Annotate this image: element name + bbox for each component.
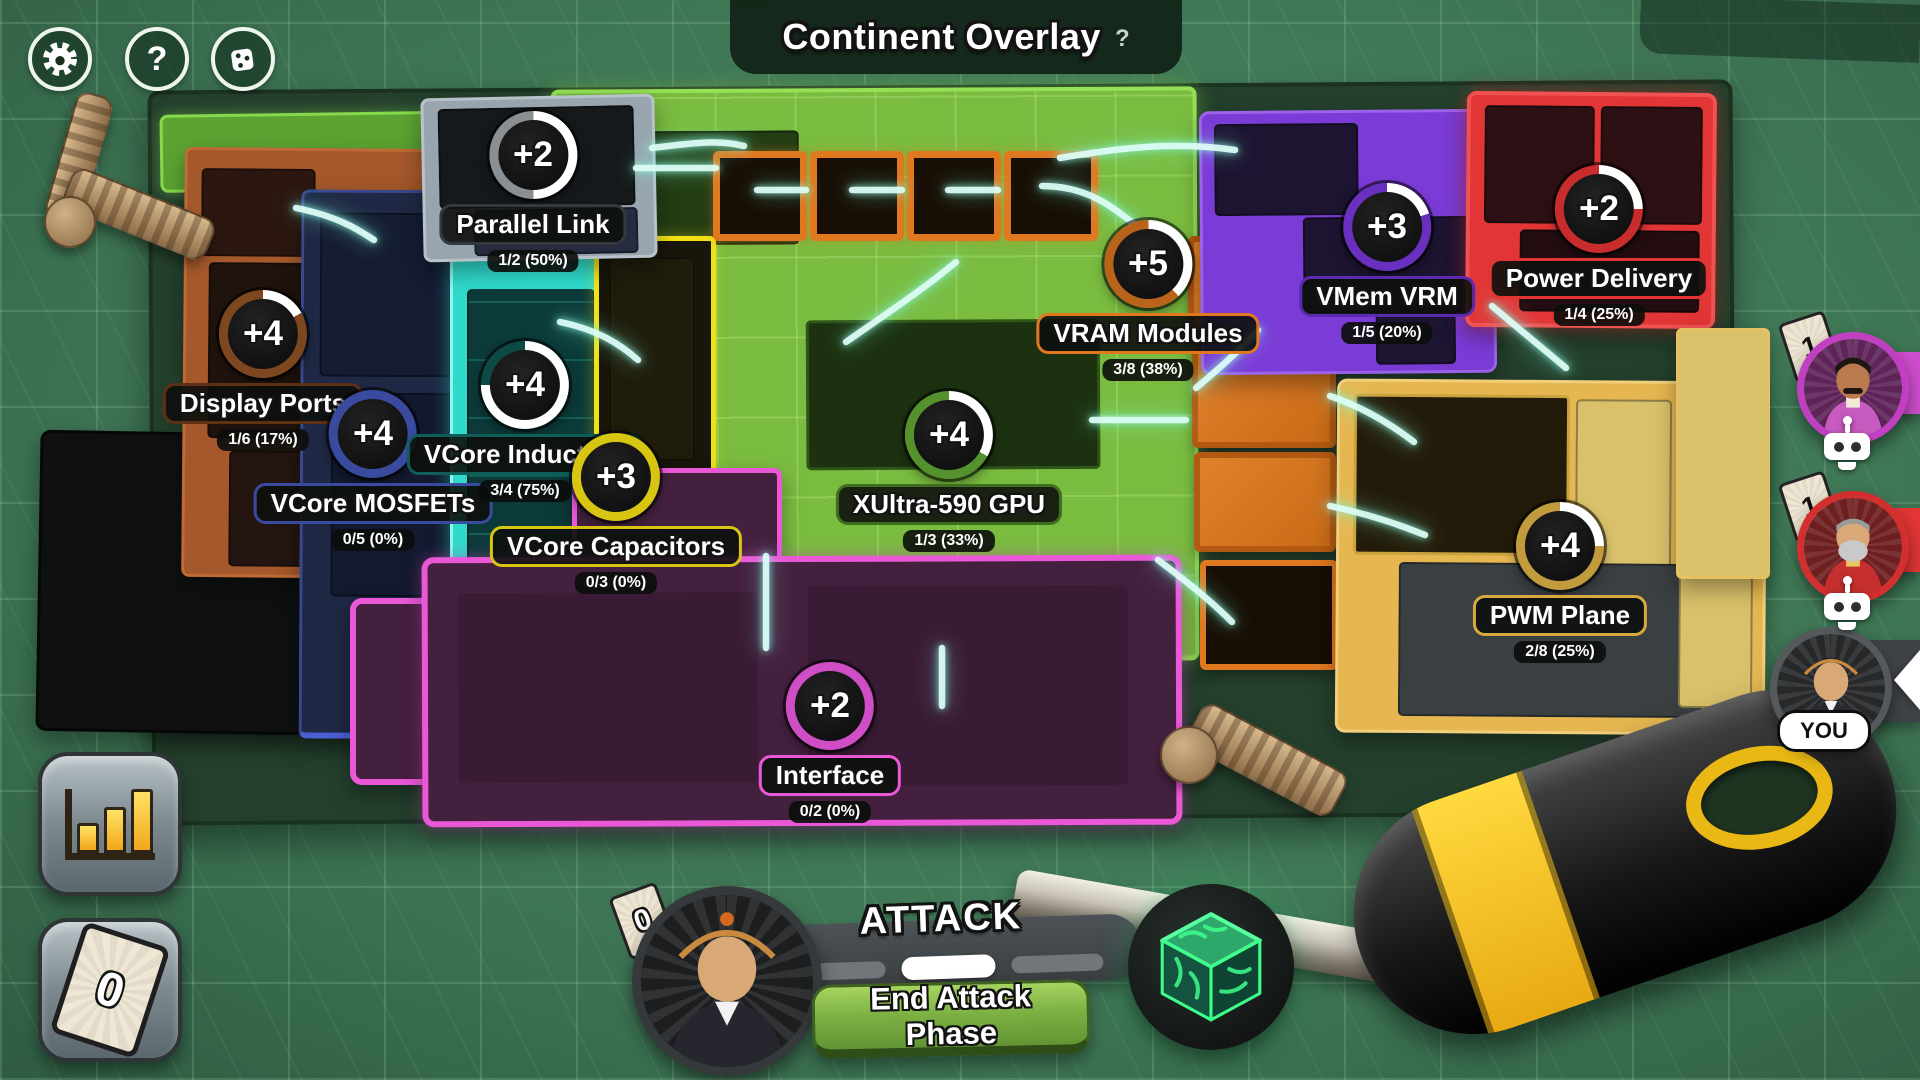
you-label: YOU: [1777, 710, 1871, 752]
page-title: Continent Overlay: [782, 16, 1101, 58]
phase-step: [1011, 953, 1104, 973]
region-bonus: +4: [1525, 511, 1595, 581]
dice-menu-button[interactable]: [211, 27, 275, 91]
region-progress-ring: +2: [489, 111, 577, 199]
region-name-label: Power Delivery: [1489, 258, 1709, 299]
vram-pad-square: [907, 151, 1001, 241]
region-progress-label: 1/2 (50%): [487, 250, 578, 272]
region-name-label: VCore Capacitors: [490, 526, 742, 567]
region-badge-vmem-vrm[interactable]: +3 VMem VRM 1/5 (20%): [1299, 183, 1475, 344]
region-badge-parallel-link[interactable]: +2 Parallel Link 1/2 (50%): [439, 111, 626, 272]
region-progress-label: 0/3 (0%): [575, 572, 657, 594]
region-bonus: +3: [581, 442, 651, 512]
region-name-label: XUltra-590 GPU: [836, 484, 1062, 525]
die-icon: [1150, 906, 1272, 1028]
end-attack-phase-button[interactable]: End Attack Phase: [811, 979, 1090, 1059]
phase-step-current: [901, 954, 996, 980]
region-name-label: VRAM Modules: [1036, 313, 1259, 354]
player-portrait: [1804, 339, 1902, 437]
player-portrait: [1804, 498, 1902, 596]
region-name-label: Interface: [759, 755, 901, 796]
region-progress-label: 0/2 (0%): [789, 801, 871, 823]
help-icon: ?: [147, 40, 168, 79]
region-bonus: +4: [490, 350, 560, 420]
region-bonus: +2: [1564, 174, 1634, 244]
screwdriver-hole: [1677, 734, 1842, 862]
region-shape-vram-modules[interactable]: [1194, 452, 1336, 552]
region-bonus: +4: [914, 400, 984, 470]
stats-icon: [65, 789, 155, 860]
help-button[interactable]: ?: [125, 27, 189, 91]
hand-cards-button[interactable]: 0: [38, 918, 182, 1062]
region-progress-ring: +5: [1104, 220, 1192, 308]
attack-die-button[interactable]: [1128, 884, 1294, 1050]
region-progress-ring: +3: [1343, 183, 1431, 271]
region-progress-ring: +4: [329, 390, 417, 478]
mat-corner-shadow: [1639, 0, 1920, 63]
header-bar: Continent Overlay ?: [730, 0, 1182, 74]
region-shape-vram-modules[interactable]: [1200, 560, 1338, 670]
region-badge-vcore-capacitors[interactable]: +3 VCore Capacitors 0/3 (0%): [490, 433, 742, 594]
region-progress-label: 0/5 (0%): [332, 529, 414, 551]
region-bonus: +2: [498, 120, 568, 190]
region-name-label: VMem VRM: [1299, 276, 1475, 317]
vram-pad-square: [713, 151, 807, 241]
screw-head-decor: [44, 196, 96, 248]
region-progress-ring: +4: [481, 341, 569, 429]
region-progress-ring: +2: [1555, 165, 1643, 253]
pcb-chip: [458, 592, 759, 783]
region-progress-label: 1/4 (25%): [1553, 304, 1644, 326]
region-progress-label: 1/5 (20%): [1341, 322, 1432, 344]
region-badge-interface[interactable]: +2 Interface 0/2 (0%): [759, 662, 901, 823]
pcb-chip: [201, 168, 316, 257]
region-bonus: +5: [1113, 229, 1183, 299]
region-bonus: +2: [795, 671, 865, 741]
header-help-icon[interactable]: ?: [1115, 25, 1130, 53]
region-badge-xultra-gpu[interactable]: +4 XUltra-590 GPU 1/3 (33%): [836, 391, 1062, 552]
chevron-left-icon[interactable]: [1894, 650, 1920, 710]
pcb-tan-column: [1676, 328, 1770, 579]
region-name-label: Parallel Link: [439, 204, 626, 245]
region-progress-label: 3/8 (38%): [1102, 359, 1193, 381]
dice-icon: [227, 43, 259, 75]
screwdriver-band: [1411, 771, 1600, 1036]
hand-card-count: 0: [49, 921, 170, 1059]
screw-head-decor: [1160, 726, 1218, 784]
region-bonus: +3: [1352, 192, 1422, 262]
region-progress-label: 1/3 (33%): [903, 530, 994, 552]
region-bonus: +4: [338, 399, 408, 469]
current-player-portrait: [641, 895, 813, 1067]
region-progress-ring: +4: [905, 391, 993, 479]
region-badge-power-delivery[interactable]: +2 Power Delivery 1/4 (25%): [1489, 165, 1709, 326]
stats-button[interactable]: [38, 752, 182, 896]
region-progress-ring: +2: [786, 662, 874, 750]
region-progress-ring: +3: [572, 433, 660, 521]
gear-icon: [43, 42, 77, 76]
robot-icon: [1824, 584, 1870, 630]
robot-icon: [1824, 424, 1870, 470]
current-player-avatar[interactable]: [632, 886, 822, 1076]
region-progress-label: 2/8 (25%): [1514, 641, 1605, 663]
region-badge-pwm-plane[interactable]: +4 PWM Plane 2/8 (25%): [1473, 502, 1647, 663]
settings-button[interactable]: [28, 27, 92, 91]
region-progress-ring: +4: [1516, 502, 1604, 590]
region-name-label: PWM Plane: [1473, 595, 1647, 636]
region-badge-vram-modules[interactable]: +5 VRAM Modules 3/8 (38%): [1036, 220, 1259, 381]
region-bonus: +4: [228, 299, 298, 369]
region-progress-ring: +4: [219, 290, 307, 378]
vram-pad-square: [810, 151, 904, 241]
